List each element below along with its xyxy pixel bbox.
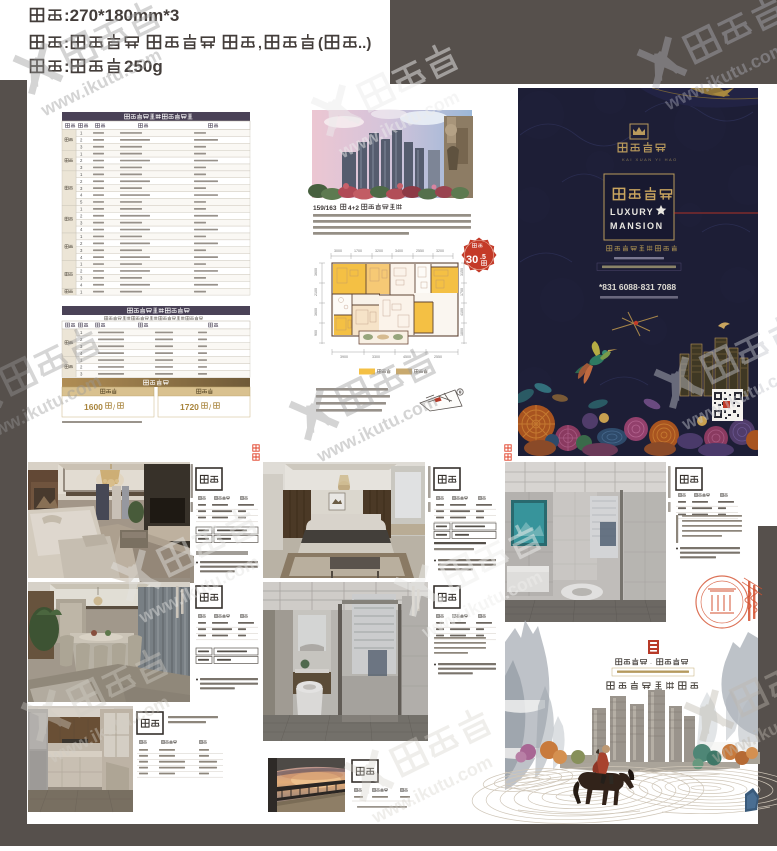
svg-text:1700: 1700 xyxy=(460,288,464,296)
svg-text:MANSION: MANSION xyxy=(610,221,664,231)
svg-text:3900: 3900 xyxy=(340,355,348,359)
svg-text:3200: 3200 xyxy=(436,249,444,253)
svg-text:·: · xyxy=(650,661,652,667)
svg-text:3600: 3600 xyxy=(314,308,318,316)
svg-text:2550: 2550 xyxy=(434,355,442,359)
svg-text:159/163: 159/163 xyxy=(313,205,337,212)
svg-text:(: ( xyxy=(318,35,323,52)
svg-text:30: 30 xyxy=(466,254,478,266)
svg-text:.5: .5 xyxy=(480,254,486,261)
svg-text:3150: 3150 xyxy=(460,268,464,276)
svg-text::270*180mm*3: :270*180mm*3 xyxy=(64,6,179,25)
svg-text:2550: 2550 xyxy=(416,249,424,253)
svg-text:1800: 1800 xyxy=(460,328,464,336)
svg-text:,: , xyxy=(258,35,262,51)
svg-text:..): ..) xyxy=(358,35,371,52)
svg-text:*831 6088·831 7088: *831 6088·831 7088 xyxy=(599,282,676,292)
svg-text:3200: 3200 xyxy=(375,249,383,253)
svg-text:KAI XUAN YI HAO: KAI XUAN YI HAO xyxy=(622,157,678,162)
svg-text:4100: 4100 xyxy=(460,308,464,316)
svg-text:1600: 1600 xyxy=(84,402,103,412)
svg-text:4500: 4500 xyxy=(403,355,411,359)
svg-text:LUXURY: LUXURY xyxy=(610,207,654,217)
svg-text:1700: 1700 xyxy=(354,249,362,253)
svg-text:1720: 1720 xyxy=(180,402,199,412)
svg-text:3000: 3000 xyxy=(334,249,342,253)
svg-text:4+2: 4+2 xyxy=(348,205,359,212)
svg-text:900: 900 xyxy=(314,330,318,336)
svg-text:3300: 3300 xyxy=(372,355,380,359)
svg-text:3600: 3600 xyxy=(314,268,318,276)
svg-text:3400: 3400 xyxy=(395,249,403,253)
svg-text:2100: 2100 xyxy=(314,288,318,296)
